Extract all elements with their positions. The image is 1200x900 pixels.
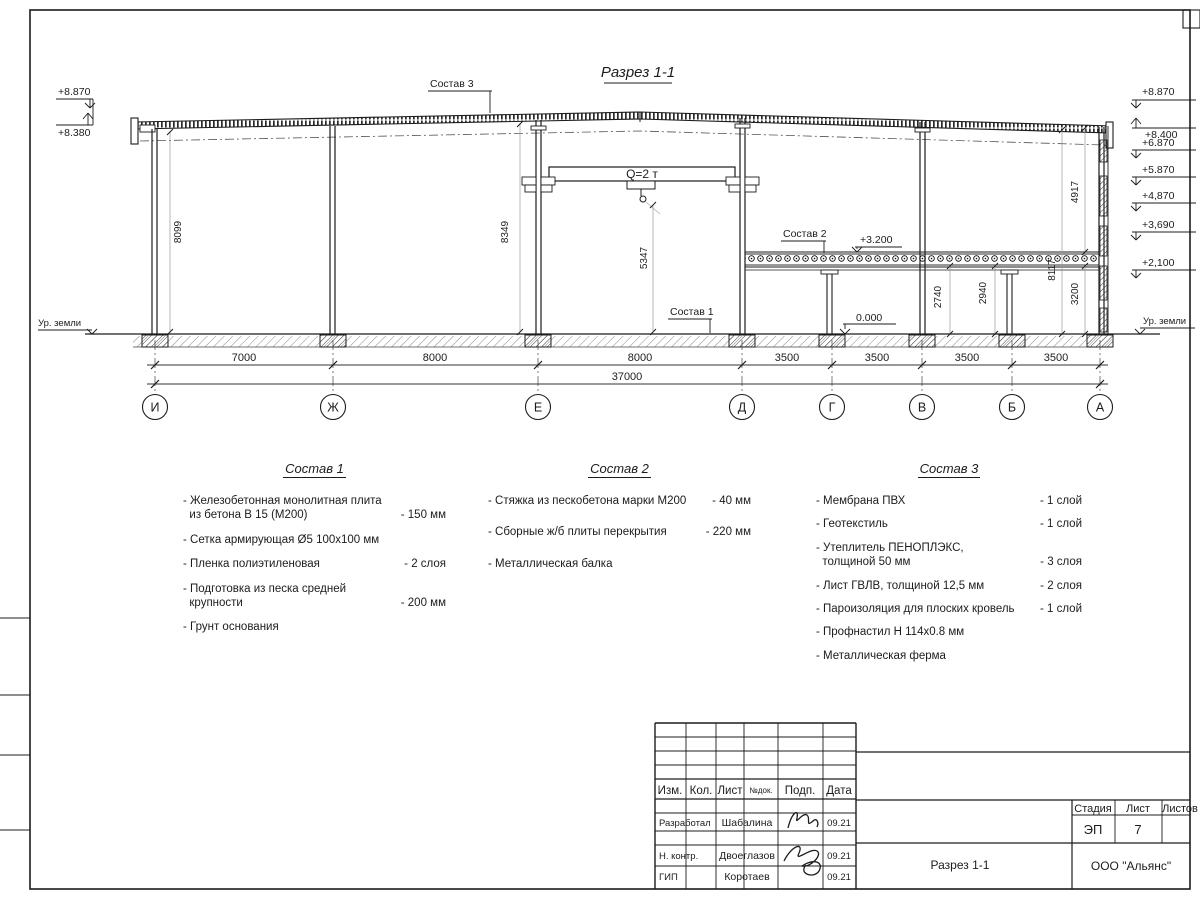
hdim-0: 7000 [232,352,256,364]
list-item: - Металлическая балка [488,557,751,571]
callout-sostav2: Состав 2 [783,228,827,240]
sostav1-block: Состав 1 - Железобетонная монолитная пли… [183,461,446,645]
vdim-8349: 8349 [500,220,511,243]
vdim-5347: 5347 [639,246,650,269]
list-item: - Геотекстиль- 1 слой [816,517,1082,531]
hdim-1: 8000 [423,352,447,364]
stamp-sheet-label: Лист [1126,803,1150,815]
stamp-name-0: Шабалина [722,817,773,829]
horizontal-dimensions: 7000 8000 8000 3500 3500 3500 3500 37000 [147,340,1108,393]
hdim-total: 37000 [612,371,643,383]
callout-sostav3: Состав 3 [430,78,474,90]
sostav1-title: Состав 1 [183,461,446,476]
stamp-date-2: 09.21 [827,872,851,883]
sostav3-block: Состав 3 - Мембрана ПВХ- 1 слой - Геотек… [816,461,1082,672]
stamp-date-0: 09.21 [827,818,851,829]
list-item: - Сетка армирующая Ø5 100х100 мм [183,533,446,547]
callout-sostav1: Состав 1 [670,306,714,318]
vdim-3200: 3200 [1070,282,1081,305]
vdim-4917: 4917 [1070,180,1081,203]
stamp-col-ndok: №док. [749,786,772,795]
vertical-dimensions: 8099 8349 5347 2740 2940 8117 4917 3200 [167,121,1088,337]
axis-Г: Г [829,401,836,415]
vdim-8117: 8117 [1047,259,1058,281]
stamp-role-0: Разработал [659,818,711,829]
inner-level-marks: +3.200 0.000 [840,234,902,334]
stamp-stage-label: Стадия [1074,803,1112,815]
elevation-marks-right: +8.870 +8.400 +6.870 +5.870 +4,870 +3,69… [1131,86,1196,334]
hdim-5: 3500 [955,352,979,364]
list-item: - Металлическая ферма [816,649,1082,663]
axis-В: В [918,401,926,415]
floor-slab [85,334,1160,347]
elev-right-2: +6.870 [1142,137,1175,149]
hdim-6: 3500 [1044,352,1068,364]
list-item: - Профнастил Н 114х0.8 мм [816,625,1082,639]
stamp-col-izm: Изм. [658,785,683,797]
elev-right-0: +8.870 [1142,86,1175,98]
stamp-col-podp: Подп. [785,785,816,797]
vdim-8099: 8099 [173,220,184,243]
signature-0 [788,813,818,828]
drawing-sheet: Разрез 1-1 Q=2 т [0,0,1200,900]
axis-И: И [151,401,160,415]
title-block: Изм. Кол. Лист №док. Подп. Дата Разработ… [655,723,1198,889]
stamp-col-kol: Кол. [690,785,713,797]
elev-right-5: +3,690 [1142,219,1175,231]
hdim-4: 3500 [865,352,889,364]
list-item: - Утеплитель ПЕНОПЛЭКС, толщиной 50 мм- … [816,541,1082,570]
level-zero: 0.000 [856,312,882,324]
sostav2-block: Состав 2 - Стяжка из пескобетона марки М… [488,461,751,588]
signature-1 [784,846,820,875]
stamp-col-data: Дата [826,785,852,797]
list-item: - Стяжка из пескобетона марки М200- 40 м… [488,494,751,508]
drawing-title-text: Разрез 1-1 [601,64,675,81]
list-item: - Мембрана ПВХ- 1 слой [816,494,1082,508]
drawing-title: Разрез 1-1 [601,64,675,83]
stamp-doc-title: Разрез 1-1 [931,858,990,872]
list-item: - Сборные ж/б плиты перекрытия- 220 мм [488,525,751,539]
elev-left-bottom: +8.380 [58,127,91,139]
stamp-col-list: Лист [718,785,744,797]
hdim-2: 8000 [628,352,652,364]
list-item: - Пленка полиэтиленовая- 2 слоя [183,557,446,571]
stamp-organization: ООО "Альянс" [1091,859,1171,873]
section-drawing-svg: Разрез 1-1 Q=2 т [0,0,1200,900]
ground-level-right: Ур. земли [1143,316,1186,327]
list-item: - Грунт основания [183,620,446,634]
vdim-2940: 2940 [978,281,989,304]
stamp-stage-value: ЭП [1084,822,1103,837]
stamp-role-2: ГИП [659,872,678,883]
roof [131,112,1113,148]
crane-beam: Q=2 т [522,167,759,214]
stamp-name-2: Коротаев [724,871,770,883]
axis-Б: Б [1008,401,1016,415]
axis-Д: Д [738,401,747,415]
list-item: - Подготовка из песка средней крупности-… [183,582,446,611]
level-mezz: +3.200 [860,234,893,246]
axis-А: А [1096,401,1105,415]
hdim-3: 3500 [775,352,799,364]
stamp-sheet-number: 7 [1134,822,1141,837]
vdim-2740: 2740 [933,285,944,308]
axis-Е: Е [534,401,542,415]
stamp-date-1: 09.21 [827,851,851,862]
sheet-frame [0,10,1200,889]
elev-right-6: +2,100 [1142,257,1175,269]
list-item: - Пароизоляция для плоских кровель- 1 сл… [816,602,1082,616]
elev-right-4: +4,870 [1142,190,1175,202]
list-item: - Железобетонная монолитная плита из бет… [183,494,446,523]
mezzanine-floor [745,252,1099,334]
elev-left-top: +8.870 [58,86,91,98]
elev-right-3: +5.870 [1142,164,1175,176]
columns [152,118,1108,334]
crane-capacity-label: Q=2 т [626,167,658,181]
sostav2-title: Состав 2 [488,461,751,476]
stamp-name-1: Двоеглазов [719,850,775,862]
sostav3-title: Состав 3 [816,461,1082,476]
list-item: - Лист ГВЛВ, толщиной 12,5 мм- 2 слоя [816,579,1082,593]
stamp-role-1: Н. контр. [659,851,698,862]
axis-markers: И Ж Е Д Г В Б А [143,395,1113,420]
elevation-marks-left: +8.870 +8.380 Ур. земли [38,86,97,334]
stamp-sheets-label: Листов [1162,803,1198,815]
ground-level-left: Ур. земли [38,318,81,329]
axis-Ж: Ж [327,401,339,415]
